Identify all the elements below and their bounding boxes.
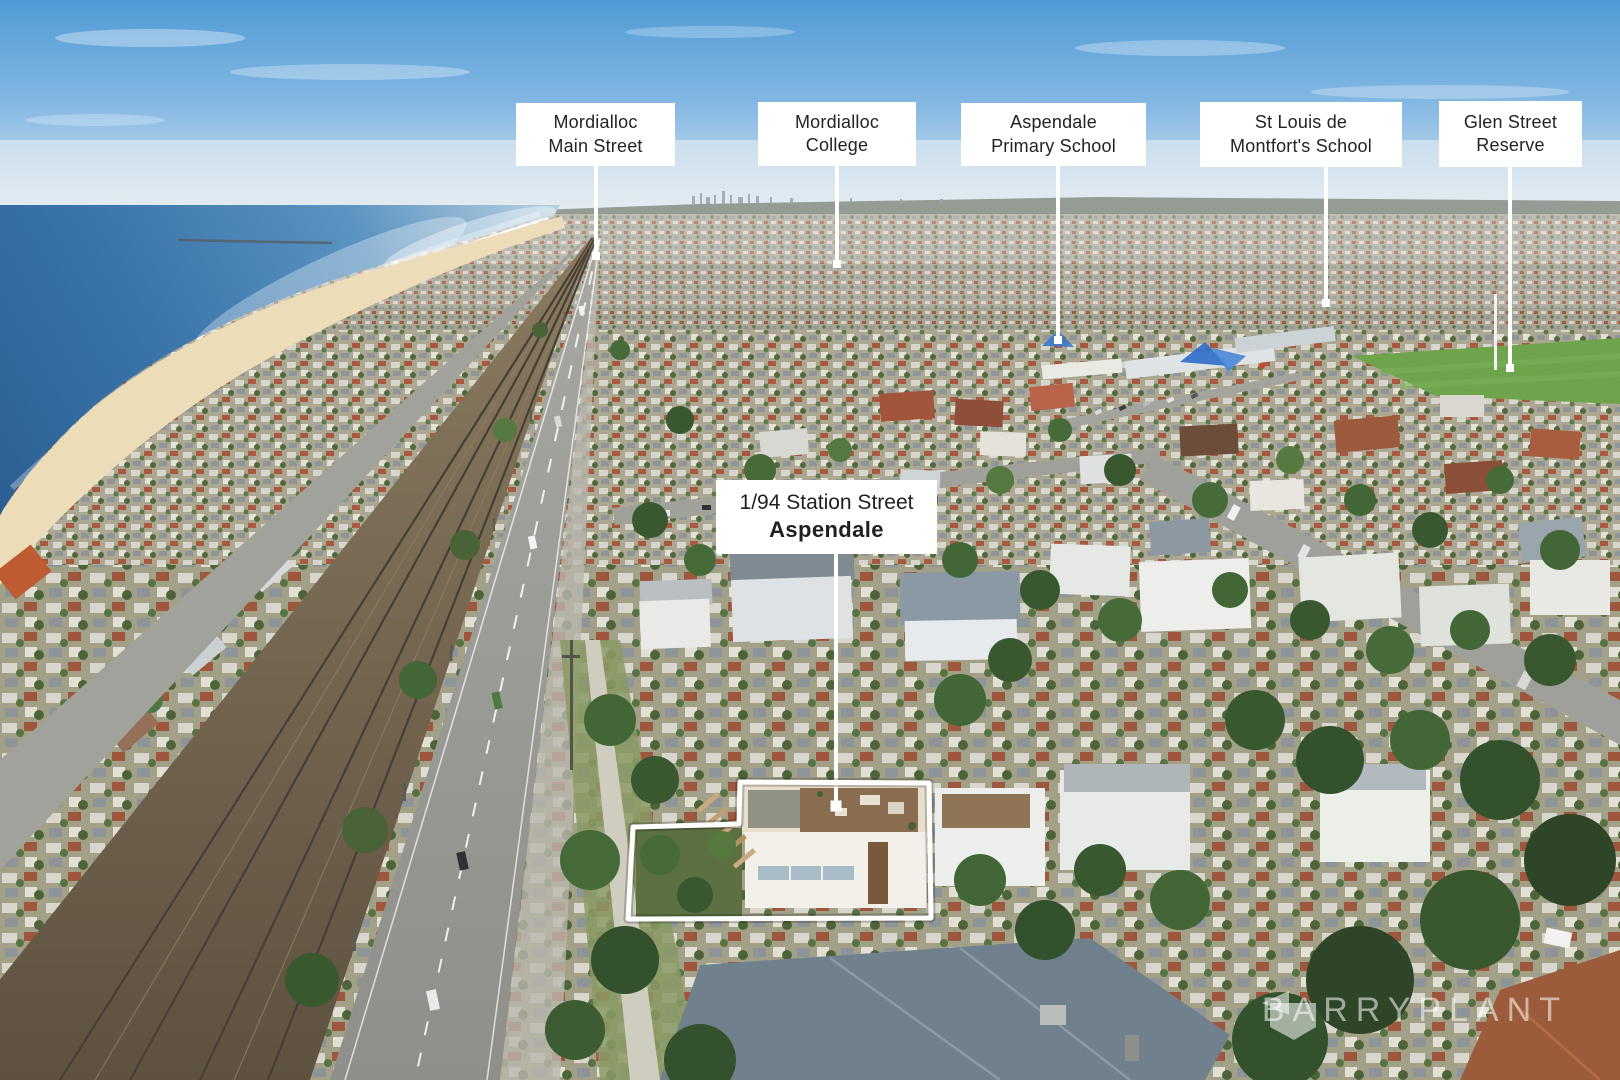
label-line: Primary School bbox=[991, 135, 1116, 158]
location-label-aspendale-primary-school: Aspendale Primary School bbox=[961, 103, 1146, 166]
label-line: St Louis de bbox=[1255, 111, 1347, 134]
flagpole bbox=[1494, 294, 1497, 370]
property-address-suburb: Aspendale bbox=[769, 516, 884, 544]
label-line: Reserve bbox=[1476, 134, 1544, 157]
listing-photo-stage: Mordialloc Main Street Mordialloc Colleg… bbox=[0, 0, 1620, 1080]
label-line: College bbox=[806, 134, 868, 157]
property-address-label: 1/94 Station Street Aspendale bbox=[716, 480, 937, 554]
label-line: Glen Street bbox=[1464, 111, 1557, 134]
location-label-st-louis-de-montforts-school: St Louis de Montfort's School bbox=[1200, 102, 1402, 167]
label-line: Mordialloc bbox=[795, 111, 879, 134]
label-line: Main Street bbox=[548, 135, 642, 158]
label-line: Aspendale bbox=[1010, 111, 1097, 134]
location-label-mordialloc-college: Mordialloc College bbox=[758, 102, 916, 166]
property-address-street: 1/94 Station Street bbox=[740, 490, 914, 516]
location-label-glen-street-reserve: Glen Street Reserve bbox=[1439, 101, 1582, 167]
label-line: Mordialloc bbox=[553, 111, 637, 134]
label-line: Montfort's School bbox=[1230, 135, 1372, 158]
location-label-mordialloc-main-street: Mordialloc Main Street bbox=[516, 103, 675, 166]
